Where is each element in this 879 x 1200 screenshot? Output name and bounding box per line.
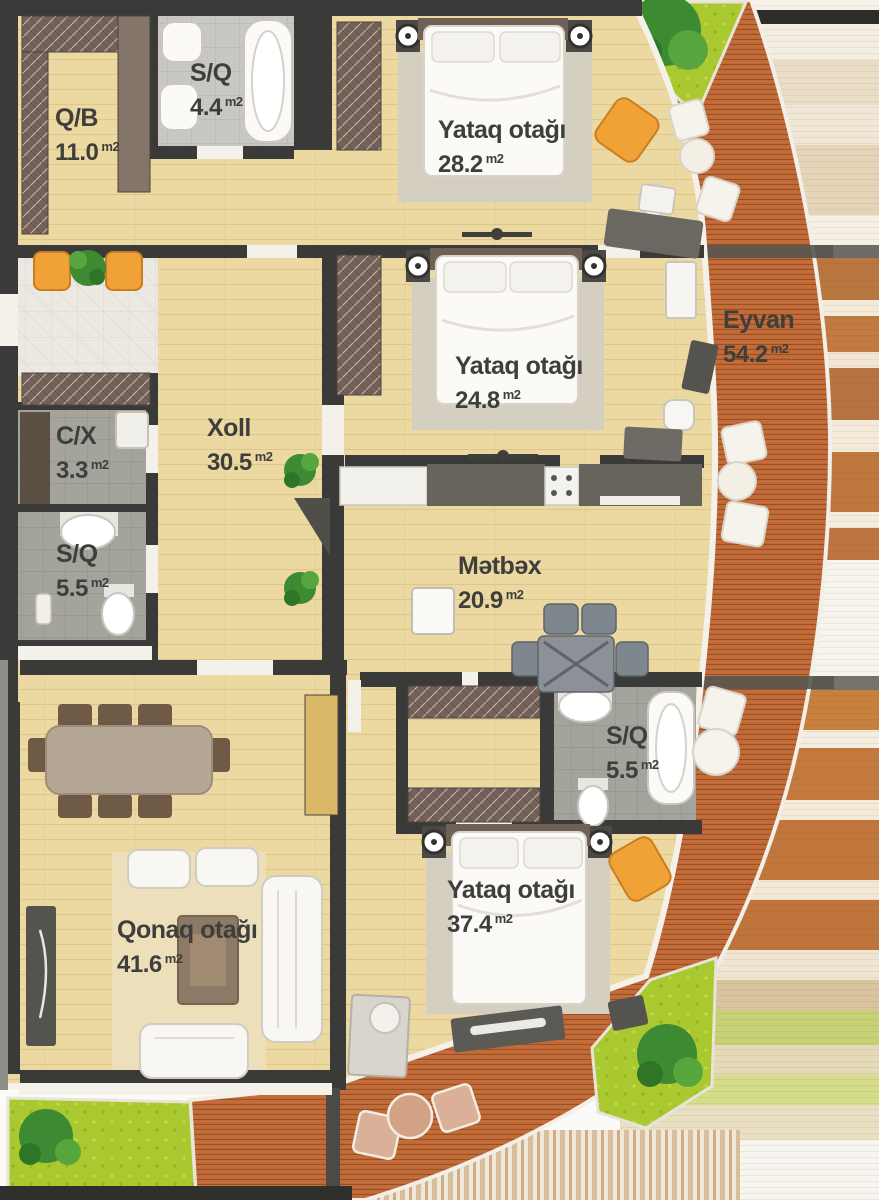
room-label-eyvan: Eyvan54.2m2	[723, 302, 794, 373]
grass-bottom-left	[8, 1098, 196, 1200]
room-label-qonaq: Qonaq otağı41.6m2	[117, 912, 257, 983]
room-label-qb: Q/B11.0m2	[55, 100, 119, 171]
room-label-bedroom-bottom: Yataq otağı37.4m2	[447, 872, 575, 943]
room-label-bedroom-middle: Yataq otağı24.8m2	[455, 348, 583, 419]
room-label-sq-left: S/Q5.5m2	[56, 536, 109, 607]
room-label-xoll: Xoll30.5m2	[207, 410, 273, 481]
room-label-bedroom-top: Yataq otağı28.2m2	[438, 112, 566, 183]
room-label-sq-top: S/Q4.4m2	[190, 55, 243, 126]
floor-plan: Q/B11.0m2 S/Q4.4m2 Yataq otağı28.2m2 Yat…	[0, 0, 879, 1200]
room-label-sq-bottom: S/Q5.5m2	[606, 718, 659, 789]
room-label-cx: C/X3.3m2	[56, 418, 109, 489]
room-label-metbex: Mətbəx20.9m2	[458, 548, 541, 619]
entry-furniture	[34, 250, 142, 290]
